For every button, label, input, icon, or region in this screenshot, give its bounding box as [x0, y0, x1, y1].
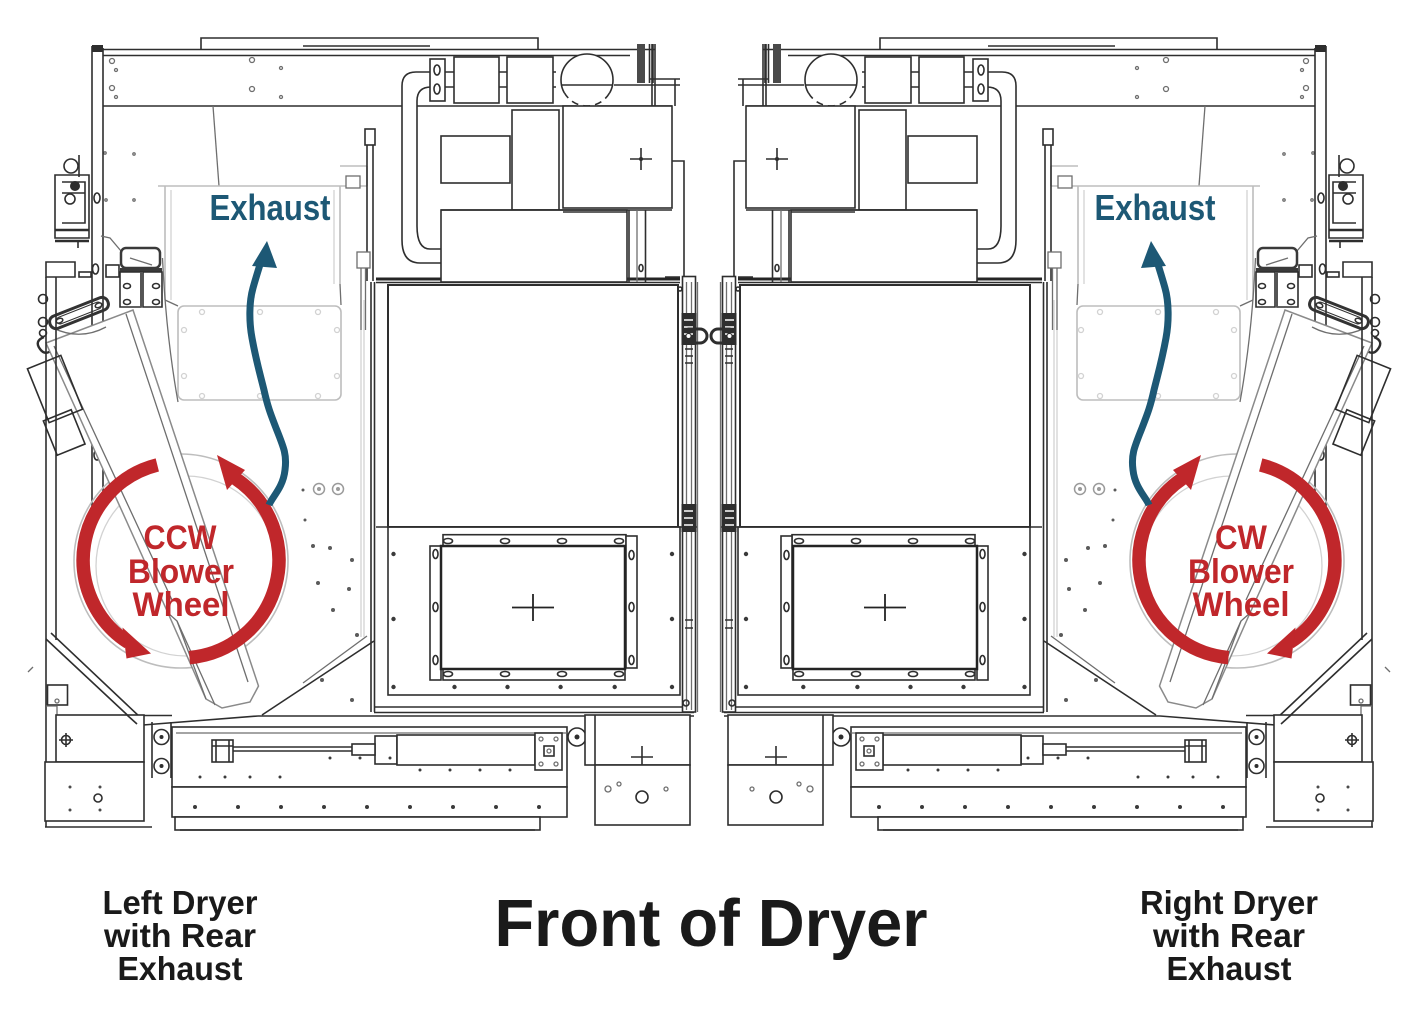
svg-text:Right Dryer: Right Dryer	[1140, 884, 1318, 921]
svg-text:Exhaust: Exhaust	[210, 187, 331, 228]
svg-text:Exhaust: Exhaust	[118, 950, 243, 987]
svg-text:with Rear: with Rear	[1152, 917, 1305, 954]
svg-text:CW: CW	[1215, 519, 1268, 557]
svg-text:Wheel: Wheel	[133, 586, 230, 624]
svg-text:Wheel: Wheel	[1193, 586, 1290, 624]
svg-text:CCW: CCW	[144, 519, 218, 557]
svg-text:Exhaust: Exhaust	[1095, 187, 1216, 228]
svg-text:with Rear: with Rear	[103, 917, 256, 954]
svg-text:Front of Dryer: Front of Dryer	[495, 886, 928, 961]
svg-text:Exhaust: Exhaust	[1167, 950, 1292, 987]
svg-text:Left Dryer: Left Dryer	[103, 884, 258, 921]
